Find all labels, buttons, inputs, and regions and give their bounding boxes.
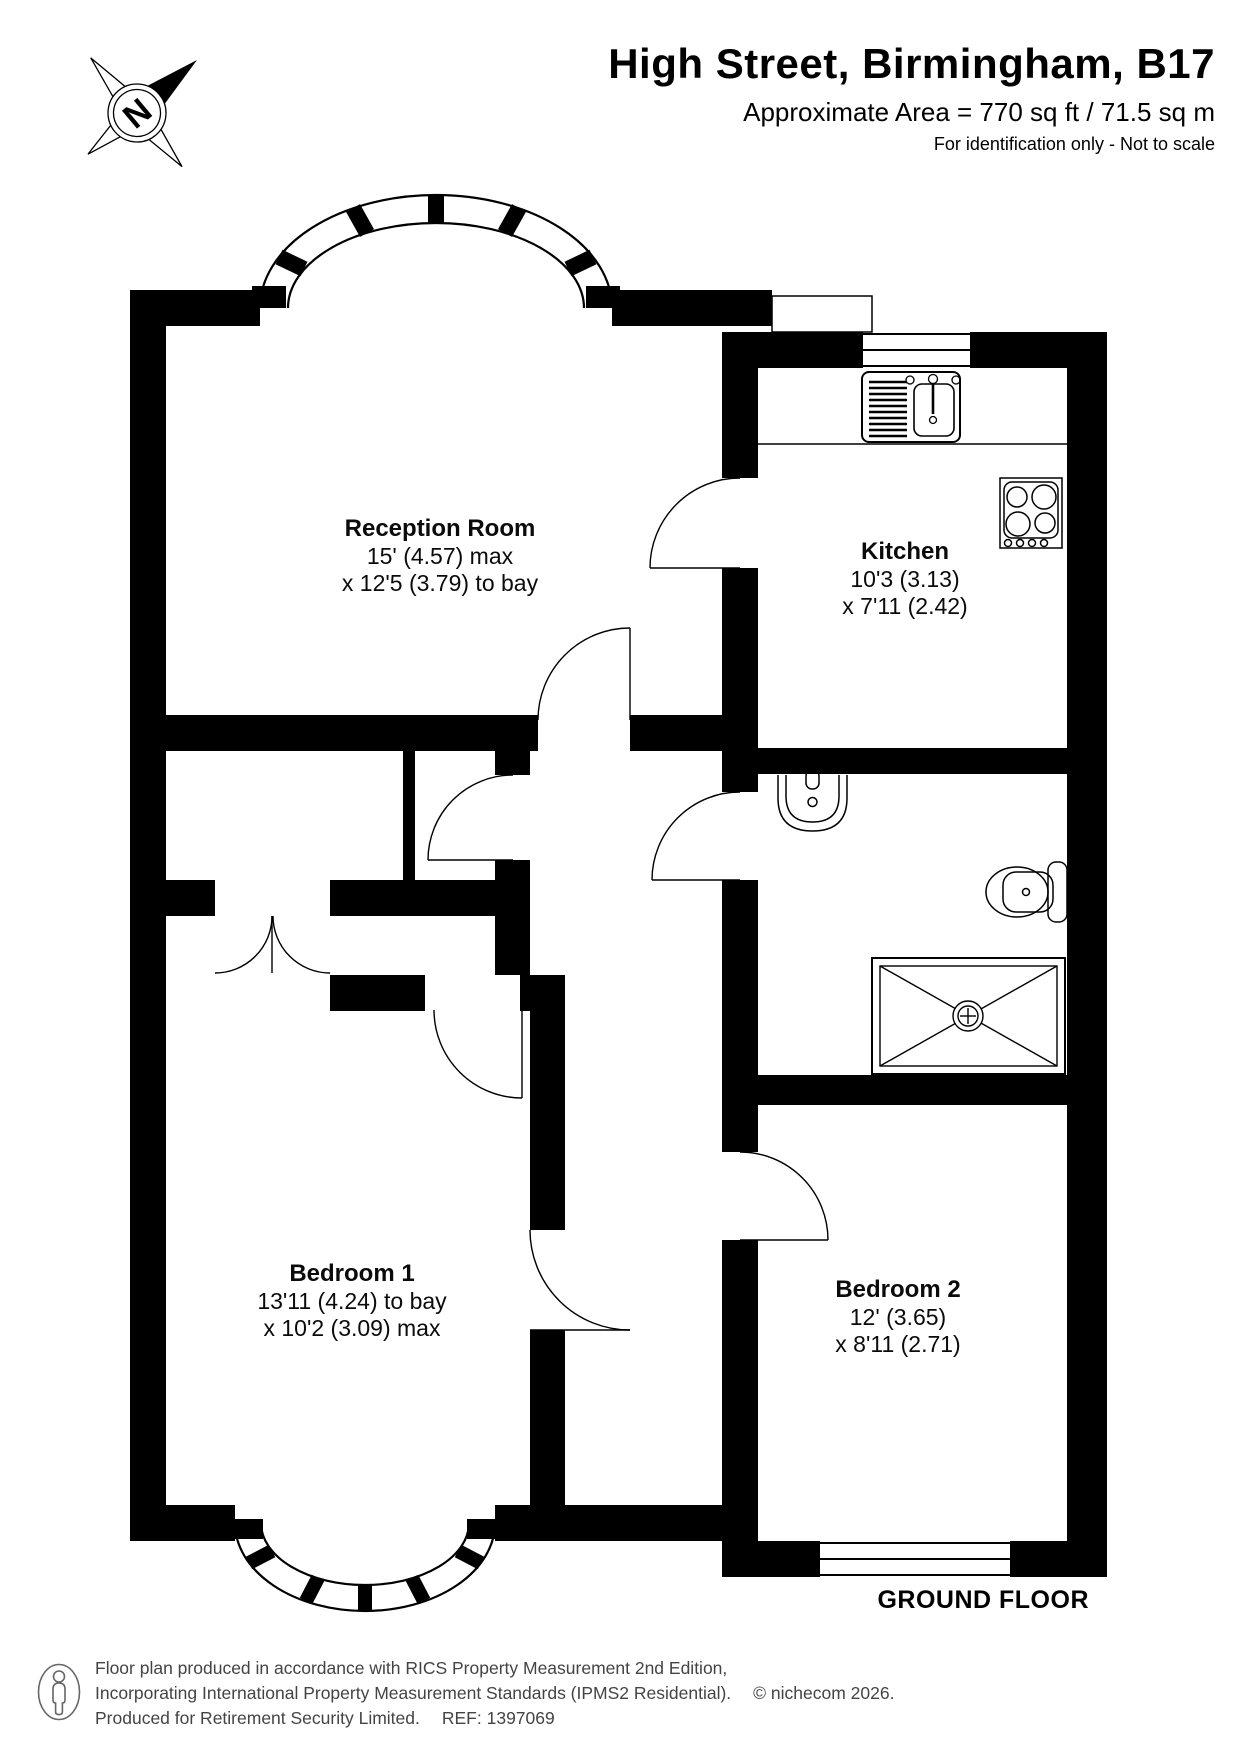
room-dim1: 15' (4.57) max: [260, 543, 620, 571]
reception-bay-window: [260, 195, 612, 308]
hob-burner-3: [1006, 512, 1030, 536]
room-dim1: 12' (3.65): [758, 1304, 1038, 1332]
area-subtitle: Approximate Area = 770 sq ft / 71.5 sq m: [743, 97, 1215, 128]
shower-tray: [872, 958, 1065, 1074]
room-name: Kitchen: [775, 538, 1035, 566]
cupboard-bottom-wall-left: [130, 880, 215, 916]
bedroom1-bay-mullions: [249, 1551, 481, 1611]
bedroom1-bottom-wall-left: [130, 1505, 235, 1541]
bay-jamb-top-right: [586, 286, 620, 308]
room-dim2: x 10'2 (3.09) max: [192, 1315, 512, 1343]
kitchen-fixtures: [758, 372, 1067, 548]
bedroom2-window: [820, 1541, 1010, 1577]
hob-burner-2: [1032, 485, 1056, 509]
copyright-text: © nichecom 2026.: [753, 1683, 894, 1703]
room-name: Bedroom 1: [192, 1260, 512, 1288]
bedroom1-bottom-wall-right: [495, 1505, 565, 1541]
bedroom1-top-wall-left: [330, 975, 425, 1011]
right-outer-wall: [1067, 332, 1107, 1577]
bay-jamb-top-left: [252, 286, 286, 308]
sink-tap: [929, 375, 938, 384]
disclaimer-text: For identification only - Not to scale: [934, 134, 1215, 155]
hob-burner-1: [1007, 487, 1027, 507]
hob-knob-4: [1041, 540, 1048, 547]
footer-line-3: Produced for Retirement Security Limited…: [95, 1706, 894, 1731]
hall-end-door: [530, 1230, 630, 1330]
compass-rose: N: [64, 33, 214, 193]
bathroom-fixtures: [778, 759, 1067, 1074]
reception-bottom-wall-right: [630, 715, 758, 751]
footer-line-1: Floor plan produced in accordance with R…: [95, 1656, 894, 1681]
kitchen-bay-outline: [772, 296, 872, 332]
bedroom1-right-wall-upper: [530, 1011, 565, 1230]
bathroom-top-wall: [722, 748, 1107, 774]
footer-line-3-text: Produced for Retirement Security Limited…: [95, 1708, 420, 1728]
bedroom1-bay-window: [235, 1523, 495, 1611]
toilet-cistern: [1048, 862, 1067, 922]
person-height-icon: [36, 1663, 82, 1721]
bedroom2-label: Bedroom 2 12' (3.65) x 8'11 (2.71): [758, 1276, 1038, 1359]
reception-kitchen-divider-upper: [722, 332, 758, 478]
reception-room-label: Reception Room 15' (4.57) max x 12'5 (3.…: [260, 515, 620, 598]
bedroom1-door: [434, 1010, 522, 1098]
bathroom-left-wall: [722, 880, 758, 1075]
sink-drainer-lines: [869, 382, 907, 436]
bedroom1-label: Bedroom 1 13'11 (4.24) to bay x 10'2 (3.…: [192, 1260, 512, 1343]
sink-drain: [930, 417, 937, 424]
cupboard-double-doors: [215, 916, 330, 973]
bathroom-door: [652, 792, 740, 880]
room-name: Reception Room: [260, 515, 620, 543]
floorplan-page: N High Street, Birmingham, B17 Approxima…: [0, 0, 1241, 1755]
hall-bottom-wall: [565, 1505, 722, 1541]
sink-handle-right: [952, 376, 960, 384]
footer-line-2: Incorporating International Property Mea…: [95, 1681, 894, 1706]
floorplan-drawing: [0, 0, 1241, 1755]
hob-burner-4: [1035, 513, 1055, 533]
reception-door: [538, 628, 630, 720]
bedroom2-door: [740, 1152, 828, 1240]
bedroom1-top-wall-right: [520, 975, 565, 1011]
cupboard-partition-wall: [403, 751, 415, 880]
basin-drain: [808, 798, 817, 807]
room-dim2: x 12'5 (3.79) to bay: [260, 570, 620, 598]
room-dim1: 13'11 (4.24) to bay: [192, 1288, 512, 1316]
room-name: Bedroom 2: [758, 1276, 1038, 1304]
toilet-bowl: [986, 867, 1048, 917]
bedroom2-left-wall: [722, 1240, 758, 1577]
kitchen-sink: [862, 372, 960, 442]
kitchen-window: [863, 332, 970, 368]
walls: [130, 286, 1107, 1577]
room-dim1: 10'3 (3.13): [775, 566, 1035, 594]
reception-top-wall-right: [612, 290, 772, 326]
kitchen-label: Kitchen 10'3 (3.13) x 7'11 (2.42): [775, 538, 1035, 621]
hall-left-wall-stub: [495, 751, 530, 775]
footer-disclaimer: Floor plan produced in accordance with R…: [95, 1656, 894, 1731]
bedroom2-bottom-wall-right: [1010, 1541, 1107, 1577]
bathroom-left-wall-stub: [722, 774, 758, 792]
floor-name-label: GROUND FLOOR: [877, 1586, 1089, 1615]
bathroom-bottom-wall: [722, 1075, 1107, 1105]
cupboard-bottom-wall-right: [330, 880, 530, 916]
reception-top-wall-left: [130, 290, 260, 326]
room-dim2: x 8'11 (2.71): [758, 1331, 1038, 1359]
page-title: High Street, Birmingham, B17: [608, 40, 1215, 88]
toilet-flush: [1023, 889, 1030, 896]
bedroom2-left-wall-stub: [722, 1105, 758, 1152]
sink-handle-left: [906, 376, 914, 384]
reception-bottom-wall-left: [130, 715, 538, 751]
bedroom1-right-wall-lower: [530, 1330, 565, 1505]
room-dim2: x 7'11 (2.42): [775, 593, 1035, 621]
bedroom2-bottom-wall-left: [722, 1541, 820, 1577]
reference-number: REF: 1397069: [442, 1708, 555, 1728]
reception-bay-mullions: [279, 195, 593, 269]
hall-left-wall-connector: [495, 916, 530, 975]
footer-line-2-text: Incorporating International Property Mea…: [95, 1683, 731, 1703]
cupboard-door: [428, 775, 513, 860]
toilet: [986, 862, 1067, 922]
kitchen-door: [650, 478, 740, 568]
